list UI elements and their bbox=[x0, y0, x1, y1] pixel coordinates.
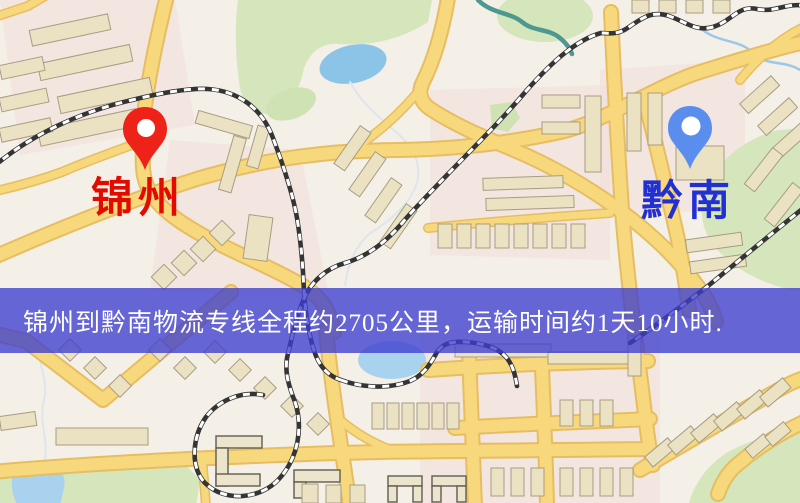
origin-city-label: 锦州 bbox=[91, 178, 185, 220]
map-screenshot: 锦州 黔南 锦州到黔南物流专线全程约2705公里，运输时间约1天10小时. bbox=[0, 0, 800, 503]
map-canvas[interactable] bbox=[0, 0, 800, 503]
destination-city-label: 黔南 bbox=[641, 181, 735, 223]
origin-pin-hole bbox=[137, 119, 155, 137]
route-caption-text: 锦州到黔南物流专线全程约2705公里，运输时间约1天10小时. bbox=[23, 303, 723, 339]
destination-pin-hole bbox=[682, 117, 701, 136]
route-caption-banner: 锦州到黔南物流专线全程约2705公里，运输时间约1天10小时. bbox=[0, 288, 800, 353]
